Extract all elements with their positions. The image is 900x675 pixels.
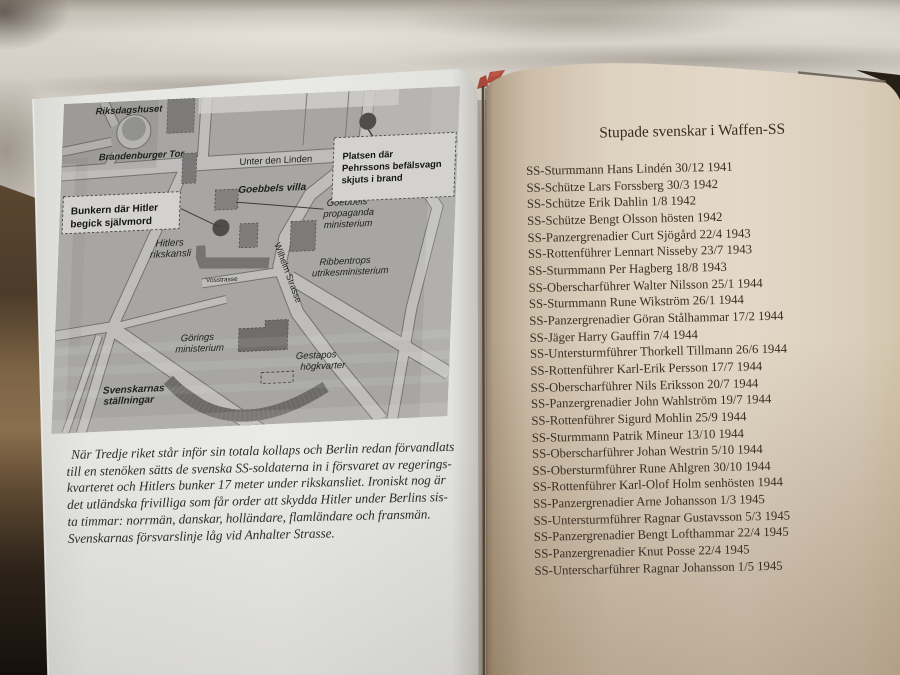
svg-text:ministerium: ministerium	[324, 218, 373, 231]
svg-text:ställningar: ställningar	[103, 394, 155, 407]
svg-text:rikskansli: rikskansli	[150, 248, 192, 261]
svg-text:Vosstrasse: Vosstrasse	[206, 276, 238, 284]
svg-text:ministerium: ministerium	[175, 342, 224, 355]
svg-text:högkvarter: högkvarter	[300, 360, 346, 373]
svg-text:Platsen där: Platsen där	[342, 148, 393, 161]
